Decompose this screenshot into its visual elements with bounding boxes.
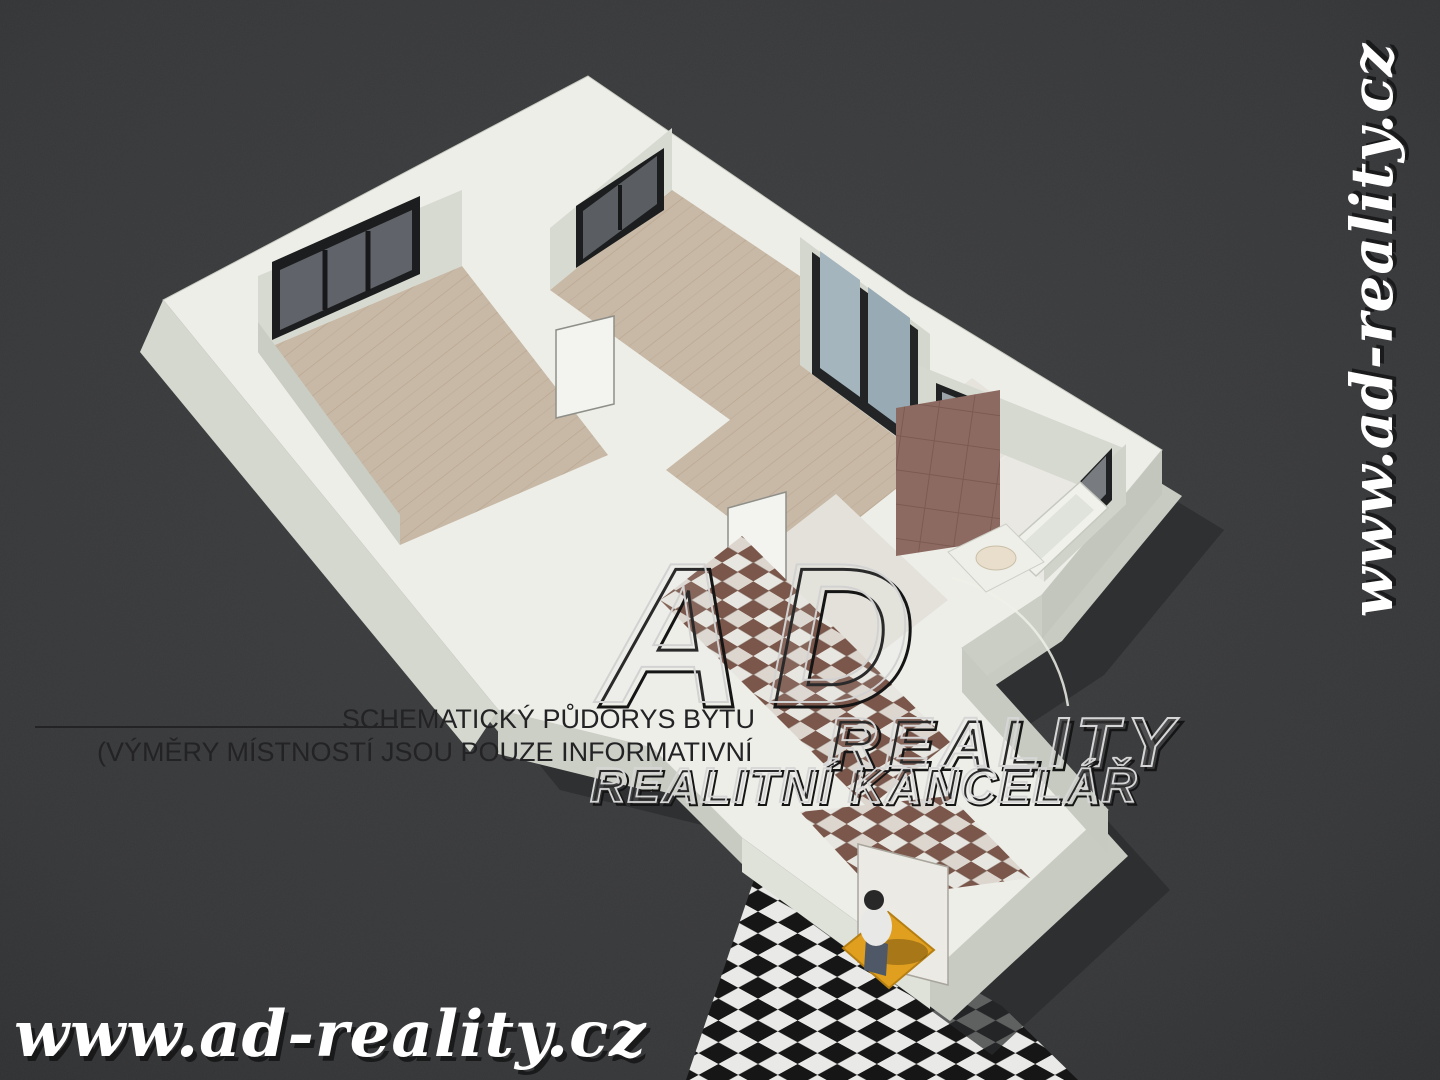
floorplan-screenshot: SCHEMATICKÝ PŮDORYS BYTU(VÝMĚRY MÍSTNOST…	[0, 0, 1440, 1080]
floorplan-scene: SCHEMATICKÝ PŮDORYS BYTU(VÝMĚRY MÍSTNOST…	[0, 0, 1440, 1080]
washbasin	[976, 546, 1016, 570]
person-head	[864, 890, 884, 910]
watermark-right: www.ad-reality.cz	[1338, 43, 1406, 618]
watermark-bottom: www.ad-reality.cz	[14, 997, 647, 1072]
door-room1	[556, 316, 614, 418]
person-body	[860, 906, 892, 946]
logo-kancelar: REALITNÍ KANCELÁŘ	[590, 758, 1138, 813]
